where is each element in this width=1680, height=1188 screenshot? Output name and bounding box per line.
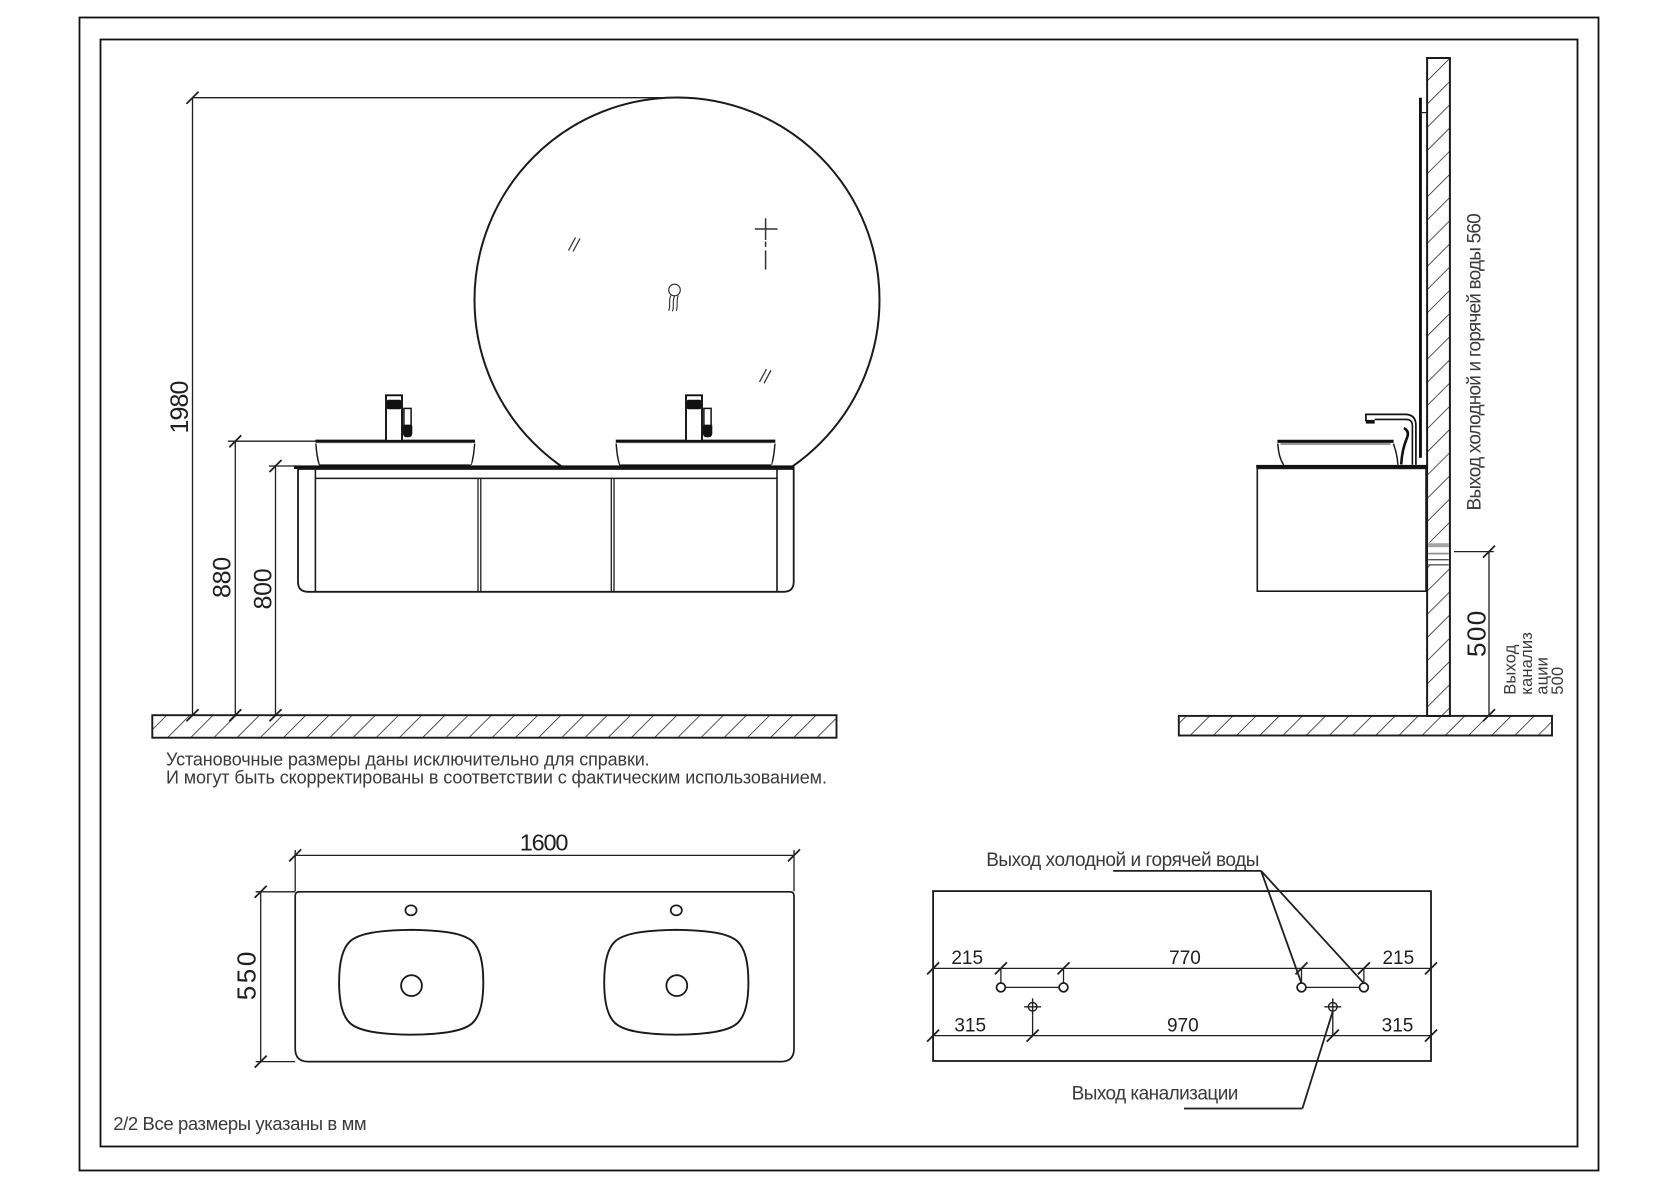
svg-text:Установочные размеры даны искл: Установочные размеры даны исключительно … bbox=[166, 750, 650, 770]
svg-text:770: 770 bbox=[1169, 948, 1201, 969]
svg-text:И могут быть скорректированы в: И могут быть скорректированы в соответст… bbox=[166, 768, 827, 788]
svg-text:Выход холодной и горячей воды: Выход холодной и горячей воды bbox=[986, 850, 1259, 871]
svg-text:1980: 1980 bbox=[166, 381, 194, 433]
svg-text:Выход: Выход bbox=[1502, 644, 1520, 695]
svg-text:1600: 1600 bbox=[520, 829, 569, 855]
svg-text:215: 215 bbox=[951, 948, 983, 969]
svg-text:Выход холодной и горячей воды: Выход холодной и горячей воды 560 bbox=[1465, 214, 1486, 511]
svg-text:500: 500 bbox=[1461, 609, 1491, 657]
svg-text:550: 550 bbox=[232, 949, 262, 1000]
svg-text:315: 315 bbox=[1382, 1016, 1414, 1037]
svg-text:215: 215 bbox=[1382, 948, 1414, 969]
svg-text:970: 970 bbox=[1167, 1016, 1199, 1037]
svg-text:800: 800 bbox=[250, 569, 278, 610]
svg-text:2/2 Все размеры указаны в мм: 2/2 Все размеры указаны в мм bbox=[113, 1113, 366, 1134]
svg-text:315: 315 bbox=[954, 1016, 986, 1037]
svg-text:880: 880 bbox=[209, 557, 237, 598]
svg-text:Выход канализации: Выход канализации bbox=[1072, 1083, 1238, 1104]
svg-text:500: 500 bbox=[1549, 667, 1567, 695]
